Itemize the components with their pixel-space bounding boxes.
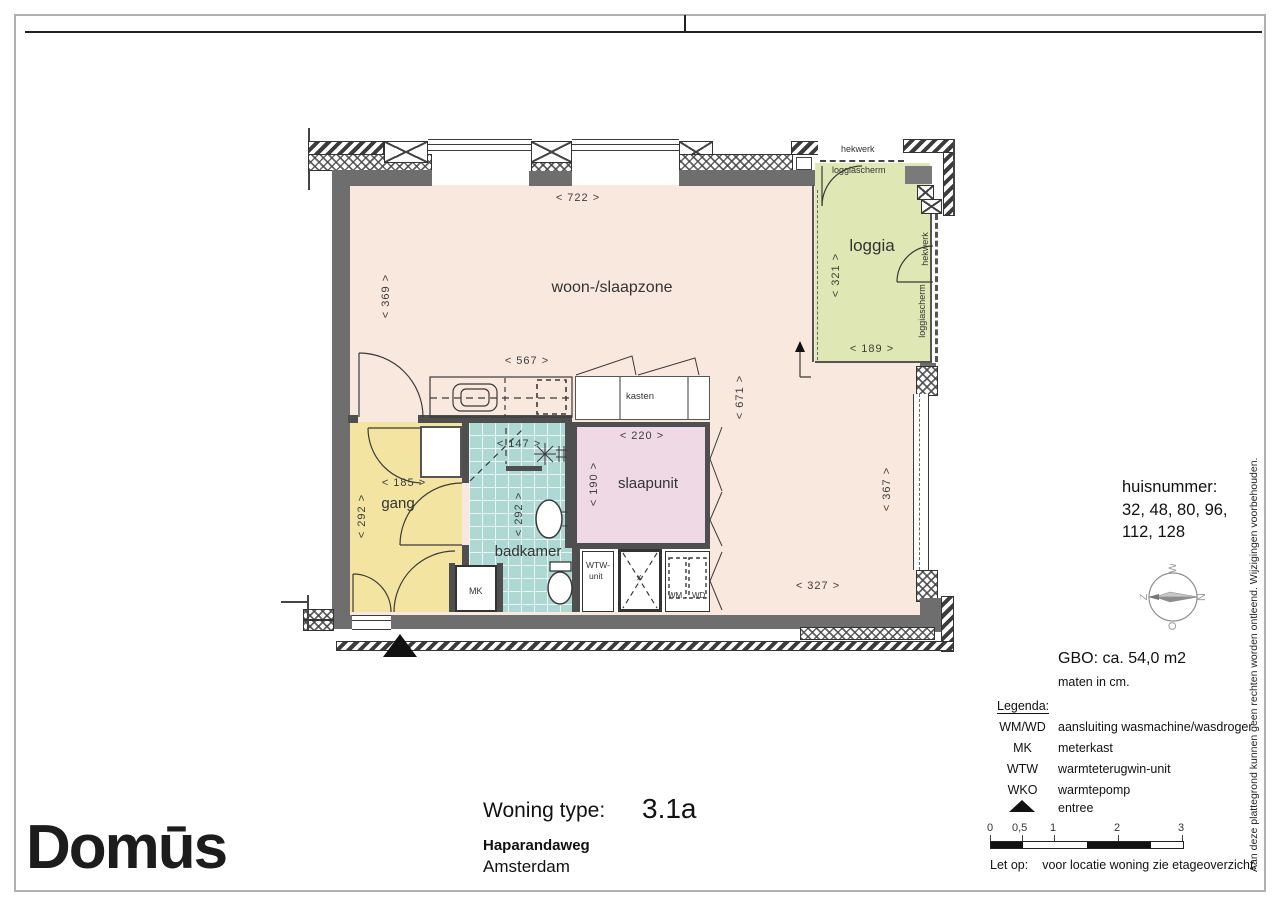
scale-bar-segment (1087, 842, 1151, 848)
scale-label: 3 (1178, 822, 1184, 834)
shaft-label: x (637, 572, 642, 582)
scale-bar-segment (991, 842, 1023, 848)
legend-desc-wko: warmtepomp (1058, 783, 1130, 797)
dim-567: < 567 > (477, 355, 577, 367)
legend-desc-wtw: warmteterugwin-unit (1058, 762, 1171, 776)
svg-text:W: W (1167, 564, 1179, 573)
closet-label: kasten (620, 391, 660, 402)
dim-190: < 190 > (588, 434, 600, 534)
woning-type-label: Woning type: (483, 799, 605, 823)
wm-label: WM (668, 591, 682, 600)
dim-321: < 321 > (830, 225, 842, 325)
scale-label: 2 (1114, 822, 1120, 834)
wtw-label-1: WTW- (586, 560, 610, 570)
brand-logo: Domūs (26, 812, 226, 883)
legend-title: Legenda: (997, 699, 1049, 713)
gbo-value: GBO: ca. 54,0 m2 (1058, 650, 1186, 668)
huisnummer-line1: 32, 48, 80, 96, (1122, 501, 1228, 520)
legend-desc-wmwd: aansluiting wasmachine/wasdroger (1058, 720, 1253, 734)
dim-147: < 147 > (469, 438, 569, 450)
scale-label: 0 (987, 822, 993, 834)
legend-code-wko: WKO (995, 783, 1050, 797)
wtw-label-2: unit (589, 571, 603, 581)
legend-code-mk: MK (995, 741, 1050, 755)
scale-bar: 0 0,5 1 2 3 (990, 822, 1184, 848)
scale-bar-track (990, 841, 1184, 849)
dim-369: < 369 > (380, 246, 392, 346)
street-name: Haparandaweg (483, 837, 590, 854)
wd-label: WD (692, 591, 705, 600)
entree-triangle-icon (1009, 800, 1035, 812)
footnote: Let op:voor locatie woning zie etageover… (990, 858, 1257, 872)
compass-rose-icon: W Z N O (1140, 564, 1206, 630)
svg-text:O: O (1167, 621, 1179, 630)
legend-desc-mk: meterkast (1058, 741, 1113, 755)
svg-text:Z: Z (1140, 593, 1150, 600)
legend-desc-entree: entree (1058, 801, 1093, 815)
loggiascherm-right-label: loggiascherm (917, 271, 927, 351)
dim-292-bath: < 292 > (513, 464, 525, 564)
legend-code-wtw: WTW (995, 762, 1050, 776)
dim-220: < 220 > (592, 430, 692, 442)
swing-arrowhead (795, 341, 805, 352)
dim-367: < 367 > (881, 439, 893, 539)
scale-label: 1 (1050, 822, 1056, 834)
dim-671: < 671 > (734, 347, 746, 447)
disclaimer-vertical: Aan deze plattegrond kunnen geen rechten… (1248, 482, 1260, 872)
units-note: maten in cm. (1058, 675, 1130, 689)
room-label-living: woon-/slaapzone (542, 279, 682, 297)
huisnummer-line2: 112, 128 (1122, 523, 1185, 542)
dim-292-hall: < 292 > (356, 466, 368, 566)
dim-327: < 327 > (768, 580, 868, 592)
floorplan-sheet: woon-/slaapzone loggia gang badkamer sla… (0, 0, 1280, 905)
legend-code-wmwd: WM/WD (995, 720, 1050, 734)
dim-189: < 189 > (822, 343, 922, 355)
scale-label: 0,5 (1012, 822, 1027, 834)
mk-label: MK (469, 586, 483, 596)
entree-triangle-plan (383, 634, 417, 657)
dim-185: < 185 > (354, 477, 454, 489)
woning-type-value: 3.1a (642, 793, 697, 825)
room-label-hall: gang (328, 495, 468, 512)
loggiascherm-top-label: loggiascherm (832, 165, 886, 175)
city-name: Amsterdam (483, 857, 570, 877)
huisnummer-label: huisnummer: (1122, 478, 1217, 497)
room-label-bathroom: badkamer (458, 543, 598, 560)
dim-722: < 722 > (528, 192, 628, 204)
svg-text:N: N (1196, 593, 1206, 601)
hekwerk-top-label: hekwerk (841, 144, 875, 154)
